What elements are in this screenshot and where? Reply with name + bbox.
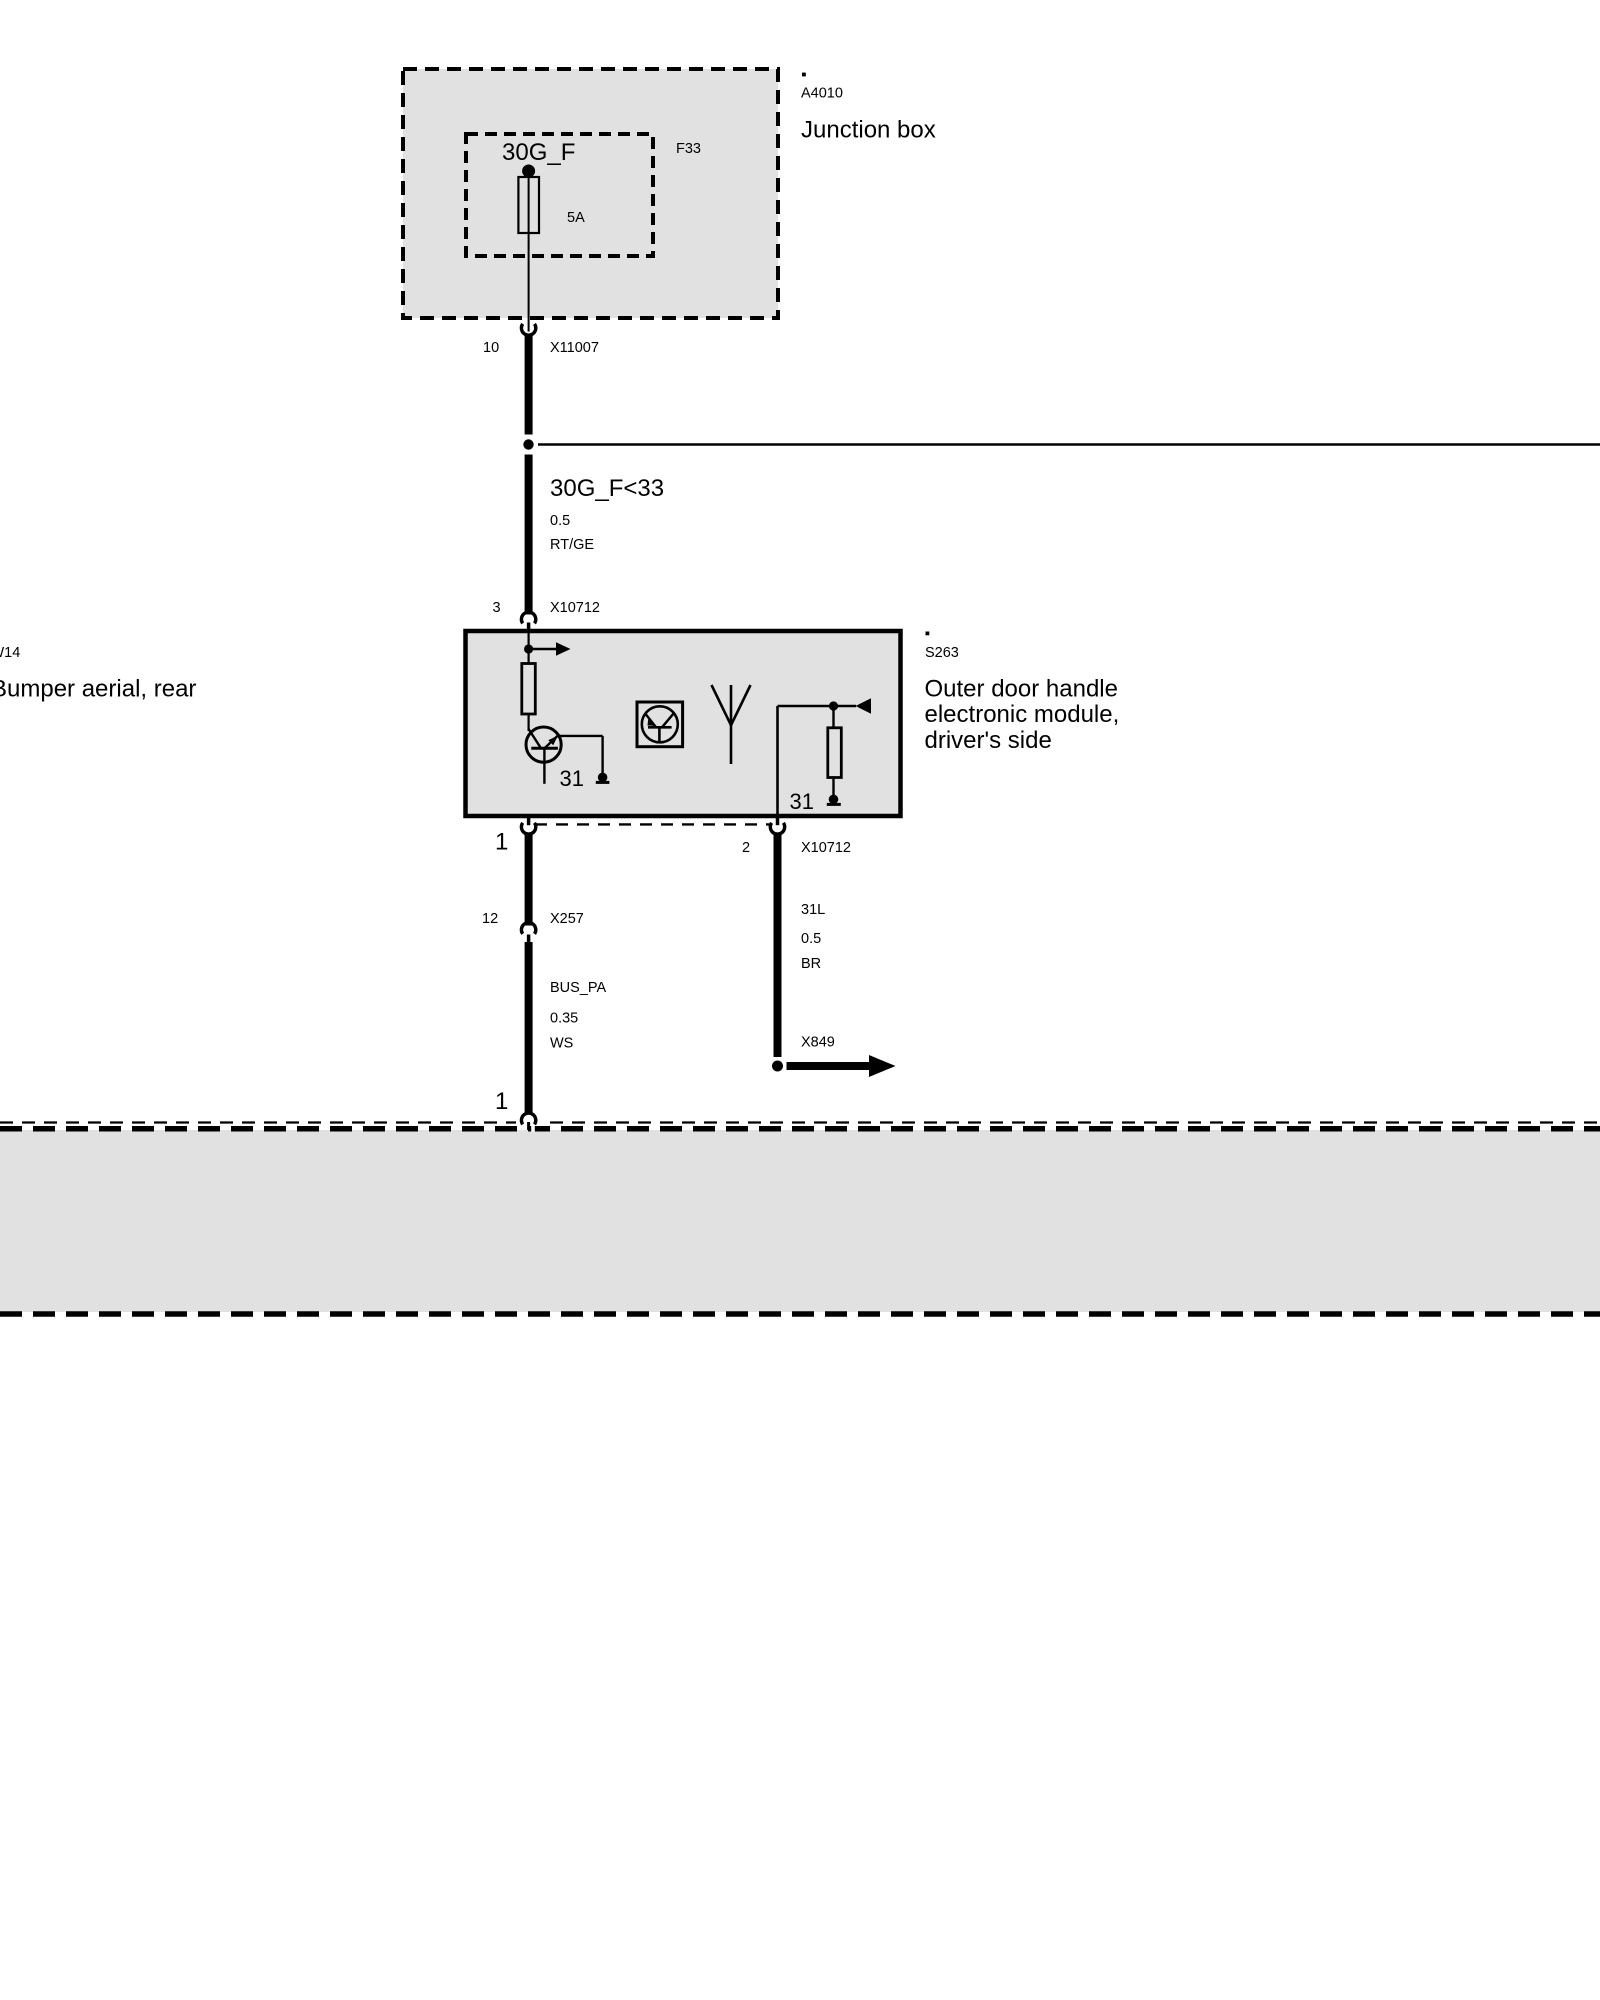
svg-text:F33: F33 <box>676 141 701 157</box>
svg-text:RT/GE: RT/GE <box>550 537 594 553</box>
svg-text:12: 12 <box>482 911 498 927</box>
svg-text:X10712: X10712 <box>801 840 851 856</box>
svg-text:Junction box: Junction box <box>801 117 936 144</box>
svg-text:30G_F<33: 30G_F<33 <box>550 475 664 502</box>
svg-text:Bumper aerial, rear: Bumper aerial, rear <box>0 676 196 703</box>
svg-text:electronic module,: electronic module, <box>925 701 1120 728</box>
svg-text:31L: 31L <box>801 902 825 918</box>
svg-text:WS: WS <box>550 1036 573 1052</box>
svg-text:31: 31 <box>790 789 814 814</box>
svg-text:X11007: X11007 <box>550 340 599 356</box>
svg-text:1: 1 <box>495 1088 508 1115</box>
svg-text:30G_F: 30G_F <box>502 139 575 166</box>
svg-text:A4010: A4010 <box>801 86 843 102</box>
svg-text:X10712: X10712 <box>550 600 600 616</box>
svg-text:5A: 5A <box>567 210 585 226</box>
svg-text:1: 1 <box>495 829 508 856</box>
svg-text:X257: X257 <box>550 911 584 927</box>
svg-text:0.35: 0.35 <box>550 1011 578 1027</box>
svg-text:3: 3 <box>493 600 501 616</box>
svg-text:0.5: 0.5 <box>801 931 821 947</box>
svg-text:S263: S263 <box>925 645 959 661</box>
svg-text:BUS_PA: BUS_PA <box>550 980 606 996</box>
svg-text:W14: W14 <box>0 645 20 661</box>
svg-text:10: 10 <box>483 340 499 356</box>
svg-text:0.5: 0.5 <box>550 513 570 529</box>
svg-text:driver's side: driver's side <box>925 727 1052 754</box>
svg-text:BR: BR <box>801 956 821 972</box>
svg-text:Outer door handle: Outer door handle <box>925 676 1118 703</box>
svg-text:2: 2 <box>742 840 750 856</box>
svg-text:X849: X849 <box>801 1035 835 1051</box>
svg-text:31: 31 <box>560 766 584 791</box>
